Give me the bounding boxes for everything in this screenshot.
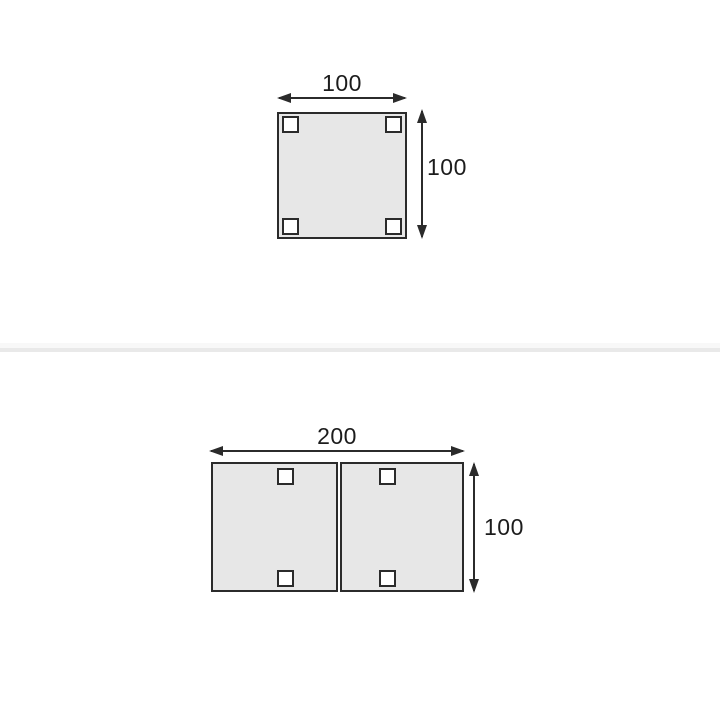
arrowhead-down-icon bbox=[417, 225, 427, 239]
product-dimension-sheet: 100 100 200 bbox=[0, 0, 720, 720]
width-dimension-arrow bbox=[209, 443, 465, 459]
tabletop-left-half bbox=[211, 462, 338, 592]
arrow-shaft bbox=[211, 450, 463, 452]
table-leg bbox=[385, 218, 402, 235]
table-leg bbox=[282, 218, 299, 235]
arrowhead-right-icon bbox=[451, 446, 465, 456]
table-leg bbox=[277, 468, 294, 485]
tabletop-right-half bbox=[340, 462, 464, 592]
table-leg bbox=[379, 468, 396, 485]
arrow-shaft bbox=[421, 111, 423, 237]
table-leg bbox=[282, 116, 299, 133]
table-leg bbox=[277, 570, 294, 587]
arrow-shaft bbox=[473, 464, 475, 591]
height-dimension-label: 100 bbox=[427, 156, 467, 179]
arrowhead-down-icon bbox=[469, 579, 479, 593]
height-dimension-arrow bbox=[466, 462, 482, 593]
table-leg bbox=[385, 116, 402, 133]
width-dimension-arrow bbox=[277, 90, 407, 106]
arrowhead-right-icon bbox=[393, 93, 407, 103]
height-dimension-label: 100 bbox=[484, 516, 524, 539]
arrow-shaft bbox=[279, 97, 405, 99]
tabletop-outline bbox=[277, 112, 407, 239]
table-leg bbox=[379, 570, 396, 587]
section-divider bbox=[0, 348, 720, 352]
